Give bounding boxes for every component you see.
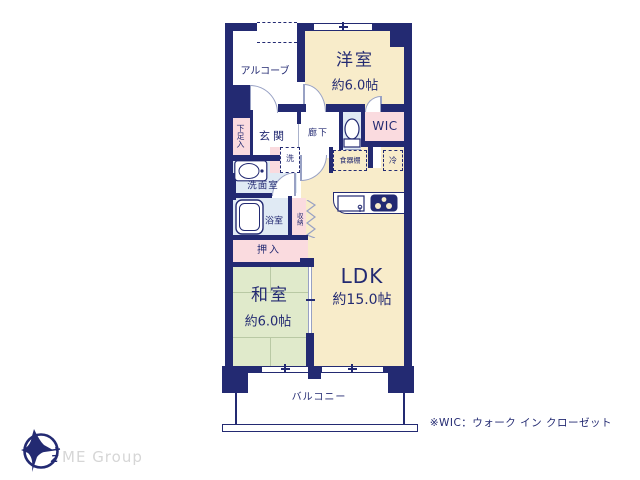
label-shoe-cabinet: 下足入	[236, 124, 244, 148]
kitchen-sink-icon	[337, 195, 365, 212]
floor-plan: アルコーブ 洋室 約6.0帖 下足入 玄関 廊下 WIC 食器棚 冷 洗 洗面室…	[0, 0, 640, 480]
svg-text:Z: Z	[50, 454, 59, 465]
stove-icon	[370, 194, 398, 212]
label-wic: WIC	[372, 120, 397, 132]
label-japanese: 和室	[251, 288, 289, 305]
door-leaf	[300, 155, 302, 181]
wall	[225, 85, 240, 110]
label-hallway: 廊下	[308, 130, 328, 139]
wall	[233, 262, 308, 267]
wall	[278, 104, 306, 112]
tick-mark	[351, 364, 353, 373]
accordion-door-icon	[305, 200, 317, 238]
wall	[306, 333, 314, 366]
tatami-line	[270, 337, 271, 366]
label-storage: 収納	[296, 213, 303, 226]
wall	[250, 118, 253, 158]
brand-text: ME Group	[62, 448, 143, 466]
label-ldk: LDK	[341, 266, 384, 286]
label-oshiire: 押入	[257, 246, 281, 256]
balcony-rail-front	[222, 424, 418, 432]
label-bathroom: 浴室	[265, 218, 283, 227]
wall	[288, 196, 292, 238]
door-leaf	[294, 172, 296, 196]
balcony-pillar	[222, 366, 248, 393]
wall	[300, 258, 314, 267]
wic-footnote: ※WIC：ウォーク イン クローゼット	[430, 415, 612, 430]
label-entrance: 玄関	[259, 131, 287, 142]
tick-mark	[342, 22, 344, 31]
wall	[233, 235, 308, 240]
label-fridge: 冷	[389, 157, 397, 165]
open-boundary	[257, 42, 297, 43]
wall	[297, 112, 301, 124]
label-washer: 洗	[286, 155, 294, 163]
balcony-rail	[235, 393, 237, 424]
label-western-size: 約6.0帖	[332, 80, 379, 93]
wall	[381, 104, 404, 112]
tick-mark	[284, 364, 286, 373]
wall	[297, 31, 305, 82]
washbasin-icon	[234, 160, 268, 182]
label-cupboard: 食器棚	[340, 158, 361, 165]
wall	[404, 43, 412, 373]
label-balcony: バルコニー	[292, 393, 347, 403]
wall	[326, 104, 365, 112]
balcony-pillar	[388, 366, 414, 393]
bathtub-icon	[235, 199, 264, 235]
label-japanese-size: 約6.0帖	[245, 316, 292, 329]
open-boundary	[257, 22, 297, 23]
label-alcove: アルコーブ	[240, 67, 289, 77]
toilet-icon	[342, 116, 362, 150]
wall	[240, 85, 250, 113]
label-western: 洋室	[336, 53, 374, 70]
balcony-pillar	[308, 366, 321, 379]
wall	[225, 110, 253, 118]
label-washroom: 洗面室	[247, 181, 279, 191]
wall	[233, 193, 272, 198]
balcony-rail	[403, 393, 405, 424]
tick-mark	[306, 299, 315, 301]
label-ldk-size: 約15.0帖	[332, 293, 391, 307]
room-ldk	[301, 147, 404, 366]
niche	[373, 147, 381, 168]
